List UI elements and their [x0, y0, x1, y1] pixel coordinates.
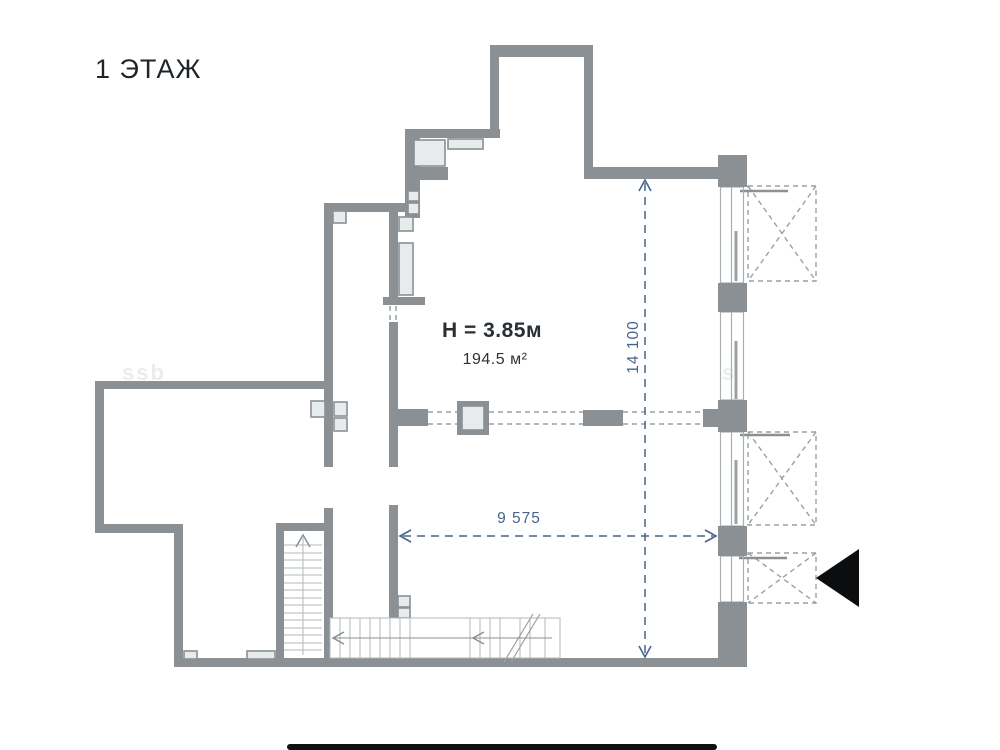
shaft-box — [399, 217, 413, 231]
wall — [405, 167, 448, 180]
pilaster — [718, 155, 747, 187]
wall — [584, 167, 720, 179]
floor-plan-drawing: ssb s 1 ЭТАЖ — [0, 0, 1000, 750]
wall — [490, 45, 593, 57]
pilaster — [718, 526, 747, 556]
shaft-box — [311, 401, 325, 417]
shaft-box — [398, 608, 410, 618]
closet-box — [414, 140, 445, 166]
dim-label-vertical: 14 100 — [625, 320, 642, 373]
wall — [389, 322, 398, 467]
wall — [389, 203, 398, 300]
ceiling-height-label: H = 3.85м — [442, 319, 542, 342]
wall — [324, 203, 333, 467]
wall — [490, 45, 499, 138]
wall — [584, 45, 593, 179]
sill-box — [184, 651, 197, 659]
dim-label-horizontal: 9 575 — [497, 510, 541, 527]
area-label: 194.5 м² — [463, 351, 528, 368]
closet-box — [448, 139, 483, 149]
pilaster — [718, 283, 747, 312]
floor-title: 1 ЭТАЖ — [95, 54, 201, 84]
watermark-right: s — [722, 360, 736, 385]
wall — [276, 523, 284, 667]
wall — [383, 297, 425, 305]
shaft-box — [334, 418, 347, 431]
staircase-lower-flight — [330, 614, 560, 662]
shaft-box — [408, 203, 419, 214]
wall — [389, 505, 398, 618]
column-core — [462, 406, 484, 430]
shaft-box — [408, 191, 419, 201]
sill-box — [247, 651, 275, 659]
wall — [174, 524, 183, 667]
wall-stub — [397, 409, 428, 426]
pilaster — [718, 400, 747, 432]
wall — [95, 524, 183, 533]
shaft-box — [398, 596, 410, 607]
shaft-box — [334, 402, 347, 416]
wall — [276, 523, 330, 531]
wall — [95, 381, 104, 533]
pilaster — [718, 602, 747, 667]
wall-pier — [583, 410, 623, 426]
floor-plan-page: ssb s 1 ЭТАЖ — [0, 0, 1000, 750]
wall — [405, 129, 500, 138]
wall — [95, 381, 333, 389]
shaft-box — [399, 243, 413, 295]
home-indicator[interactable] — [287, 744, 717, 750]
shaft-box — [333, 211, 346, 223]
